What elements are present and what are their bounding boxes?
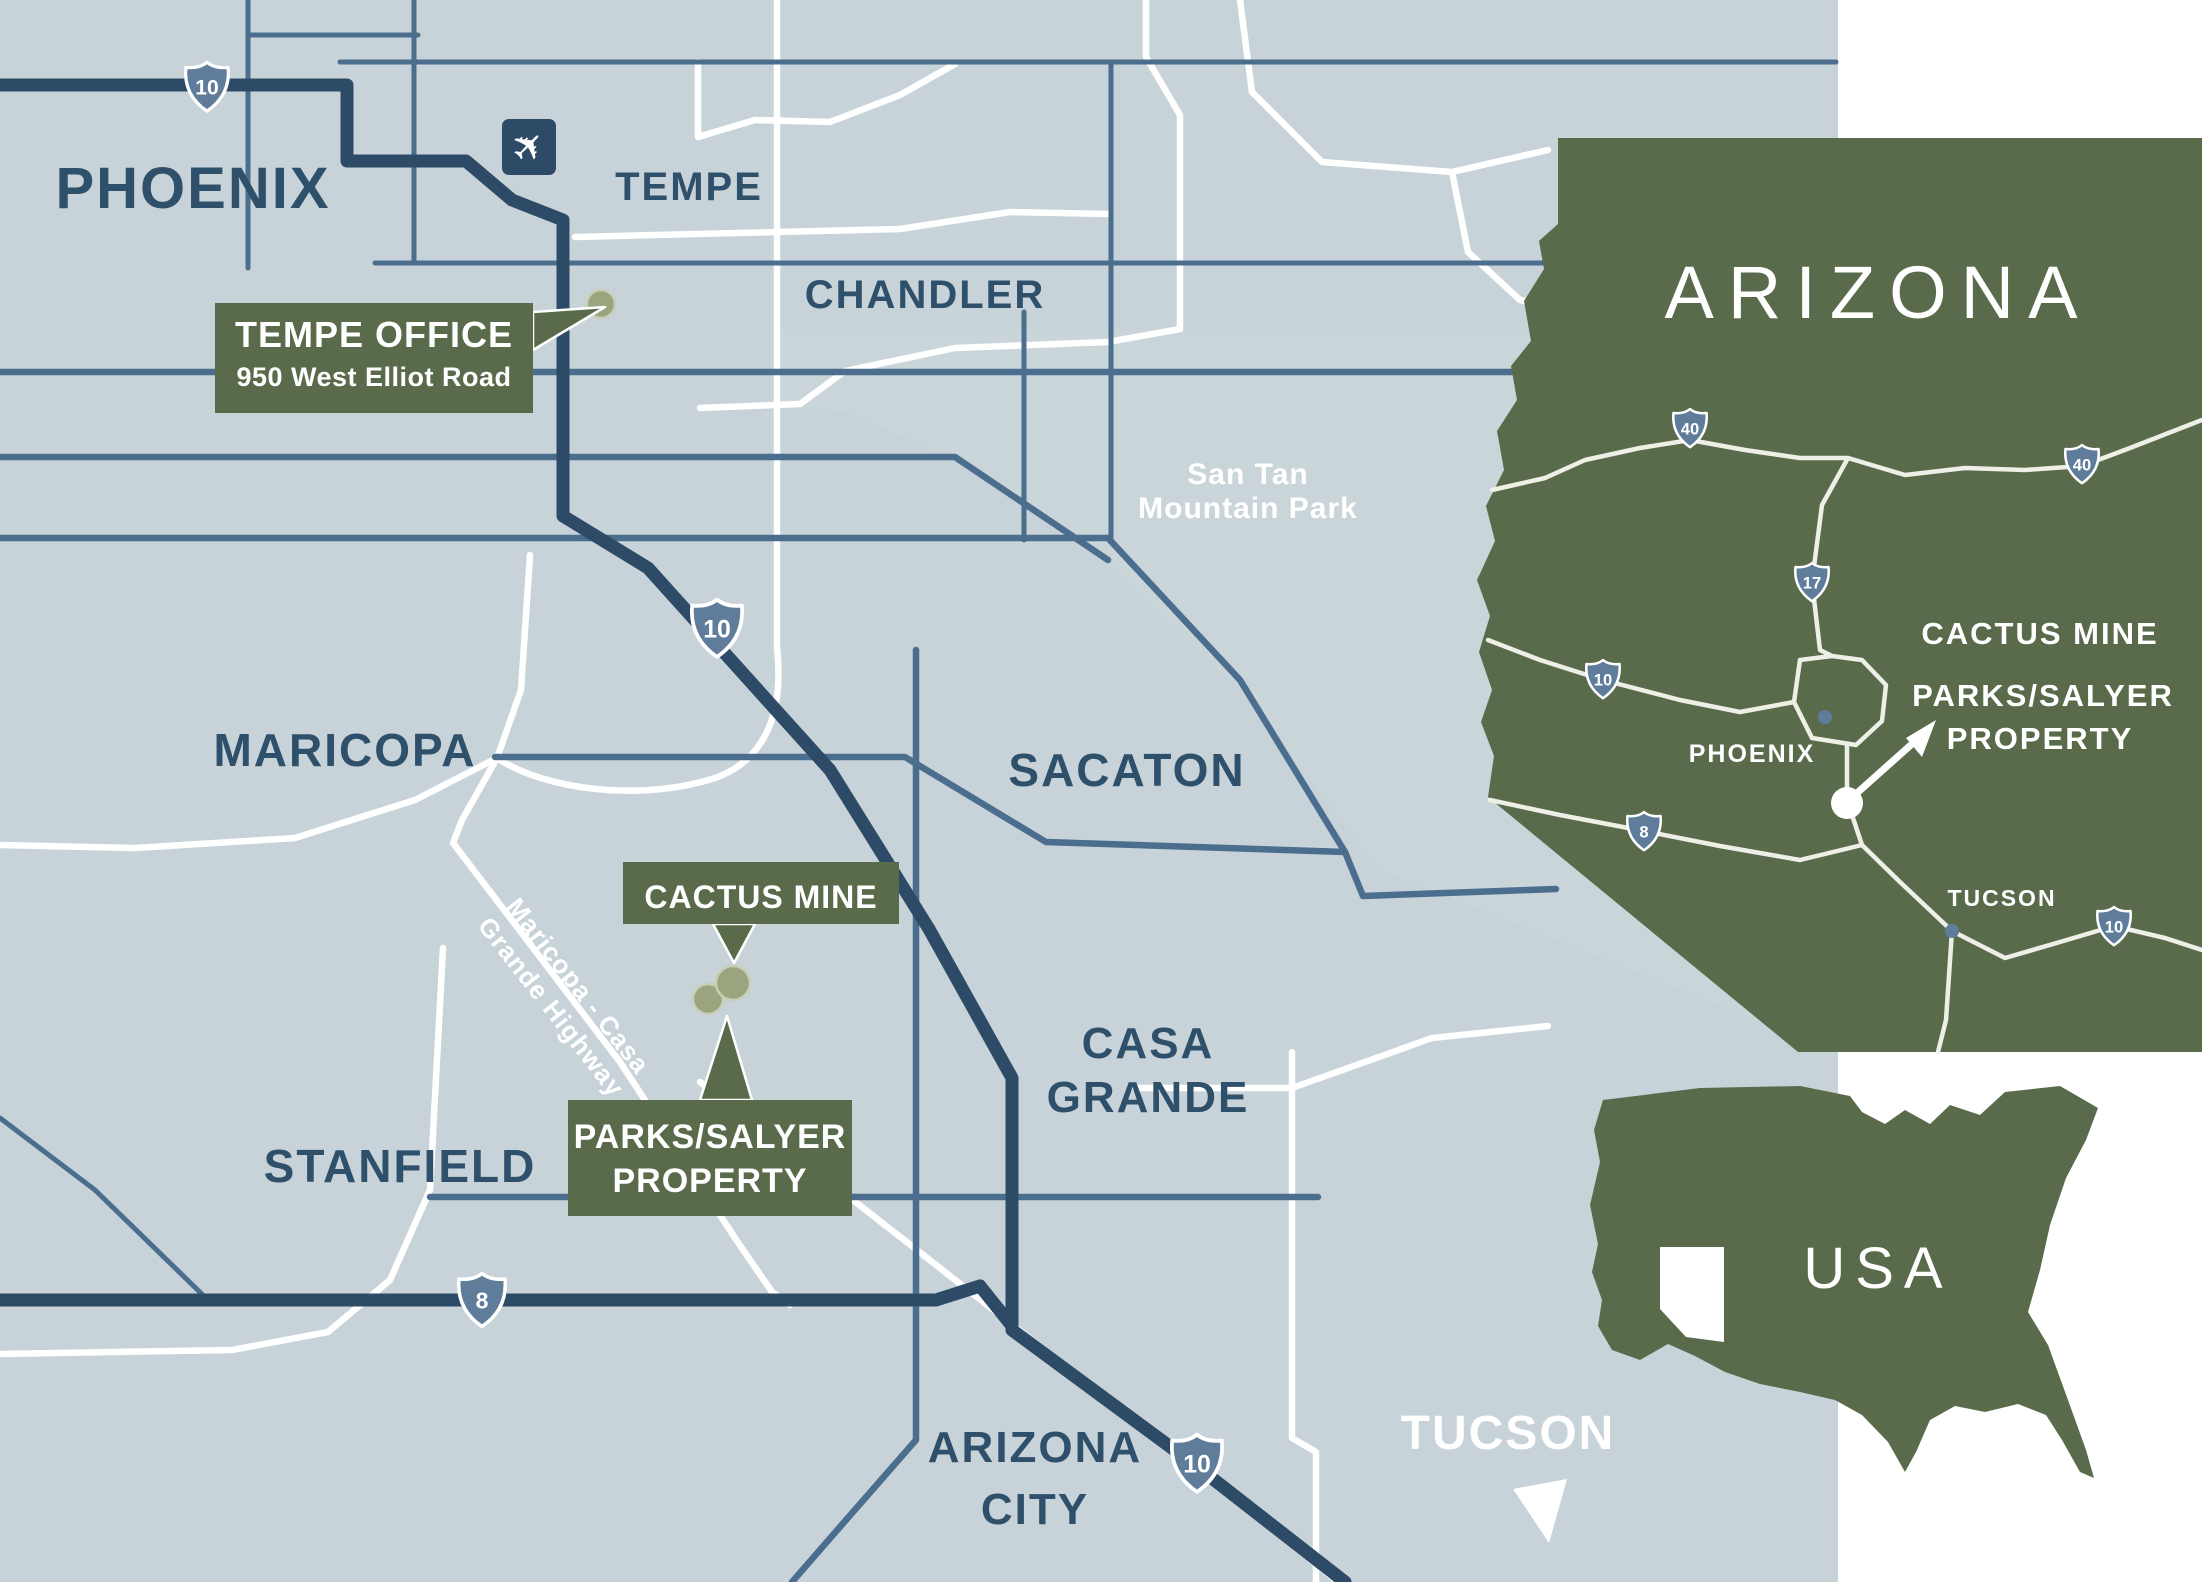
arizona-inset-title: ARIZONA (1665, 251, 2092, 334)
location-map: ✈ PHOENIX TEMPE CHANDLER MARICOPA SACATO… (0, 0, 2202, 1582)
shield-number: 10 (1594, 670, 1612, 689)
city-label-casa-grande-line1: CASA (1082, 1019, 1215, 1068)
city-label-tucson: TUCSON (1401, 1407, 1616, 1460)
city-label-phoenix: PHOENIX (55, 156, 330, 221)
shield-number: 8 (476, 1288, 489, 1314)
inset-callout-line1: CACTUS MINE (1921, 616, 2158, 651)
inset-callout-line3: PROPERTY (1947, 721, 2134, 756)
park-label-san-tan-line2: Mountain Park (1138, 492, 1358, 525)
city-label-sacaton: SACATON (1008, 744, 1245, 796)
tempe-office-subtitle: 950 West Elliot Road (236, 362, 511, 392)
airport-icon: ✈ (502, 119, 557, 175)
parks-salyer-line1: PARKS/SALYER (574, 1118, 847, 1156)
city-label-arizona-city-line2: CITY (981, 1485, 1089, 1534)
city-label-stanfield: STANFIELD (264, 1140, 537, 1192)
shield-number: 10 (703, 616, 731, 643)
shield-number: 10 (1183, 1451, 1211, 1478)
shield-number: 40 (1681, 419, 1699, 438)
parks-salyer-line2: PROPERTY (612, 1162, 807, 1200)
city-label-arizona-city-line1: ARIZONA (928, 1423, 1142, 1472)
city-label-tempe: TEMPE (615, 165, 763, 209)
cactus-mine-title: CACTUS MINE (644, 879, 877, 915)
property-dot (716, 966, 750, 1000)
inset-label-phoenix: PHOENIX (1689, 740, 1816, 768)
shield-number: 10 (2105, 917, 2123, 936)
city-label-maricopa: MARICOPA (213, 724, 476, 776)
tempe-office-title: TEMPE OFFICE (235, 314, 513, 355)
park-label-san-tan-line1: San Tan (1187, 458, 1308, 491)
shield-number: 40 (2073, 455, 2091, 474)
shield-number: 8 (1639, 822, 1648, 841)
shield-number: 10 (195, 77, 219, 100)
usa-inset-title: USA (1803, 1236, 1952, 1301)
map-screenshot: ✈ PHOENIX TEMPE CHANDLER MARICOPA SACATO… (0, 0, 2202, 1582)
city-label-chandler: CHANDLER (805, 273, 1045, 317)
inset-callout-line2: PARKS/SALYER (1912, 678, 2174, 713)
inset-label-tucson: TUCSON (1947, 885, 2056, 911)
phoenix-dot (1818, 710, 1832, 724)
tucson-dot (1945, 924, 1959, 938)
shield-number: 17 (1803, 573, 1821, 592)
city-label-casa-grande-line2: GRANDE (1047, 1073, 1250, 1122)
